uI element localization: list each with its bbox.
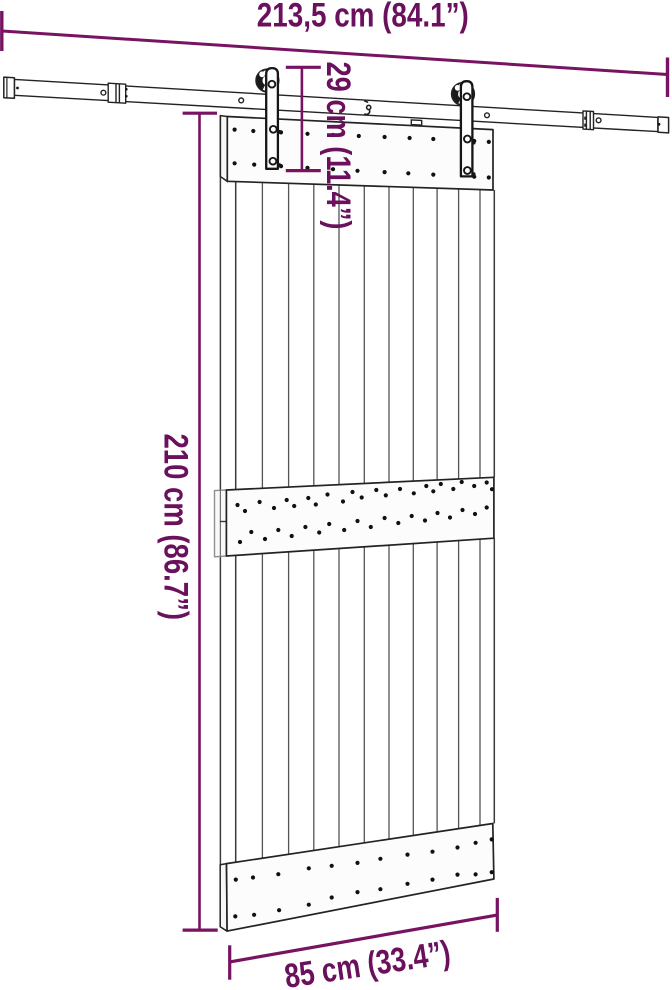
svg-text:213,5 cm (84.1”): 213,5 cm (84.1”) xyxy=(257,0,469,35)
svg-text:29 cm (11.4”): 29 cm (11.4”) xyxy=(319,62,357,230)
svg-text:210 cm (86.7”): 210 cm (86.7”) xyxy=(156,434,194,621)
